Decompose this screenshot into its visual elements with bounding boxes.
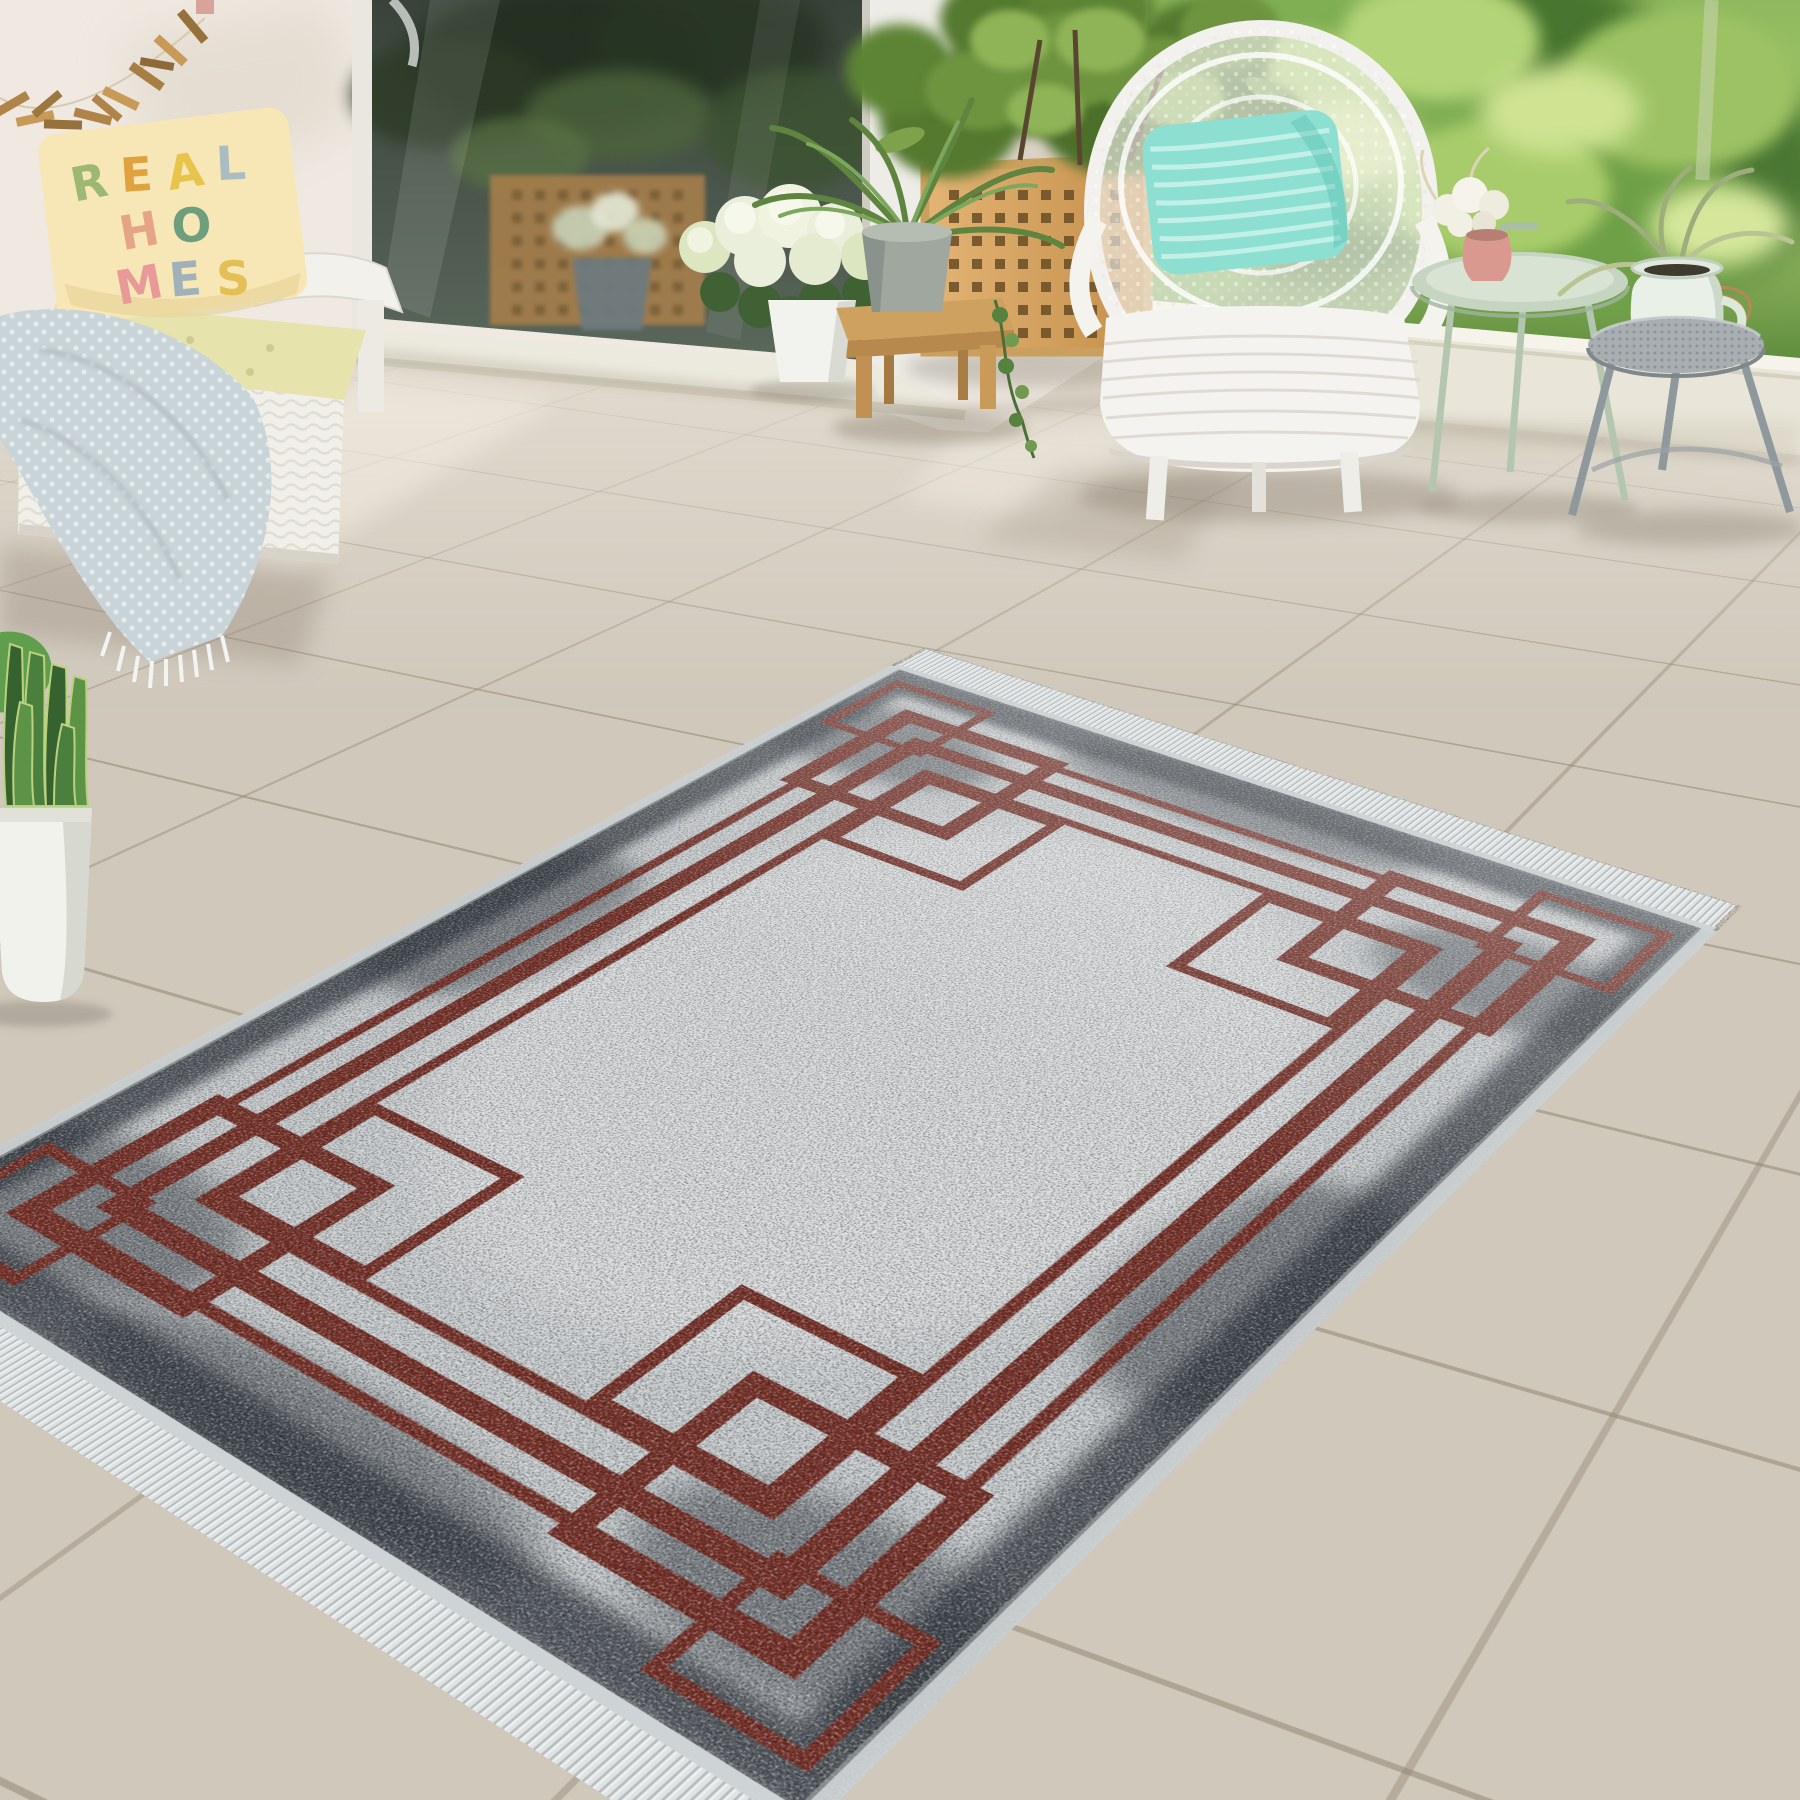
floor-light-and-shadow — [120, 352, 1800, 560]
rug-border-band — [0, 679, 1677, 1775]
wicker-bench — [0, 253, 402, 665]
pillow-letter-l: L — [214, 136, 247, 192]
driftwood-garland — [0, 0, 214, 130]
distance-haze — [0, 250, 1800, 710]
garden-foliage — [1100, 0, 1800, 315]
rug-sheen — [0, 665, 1717, 1800]
door-handle — [392, 0, 415, 66]
pillow-letter-m: M — [111, 254, 167, 317]
hydrangea-pot — [679, 184, 889, 401]
rug-art — [0, 648, 1742, 1800]
window-frame-left — [352, 0, 372, 332]
pink-vase — [1421, 148, 1511, 281]
pillow-letter-e1: E — [118, 147, 154, 204]
wood-stool — [832, 298, 1028, 444]
pillow-letter-e2: E — [167, 251, 204, 309]
rug-selvedge-left — [0, 665, 901, 1230]
rug-perspective-wrap — [365, 313, 1365, 1800]
garland-clip — [196, 0, 214, 14]
pillow-letter-s: S — [215, 251, 251, 307]
pillow-text: R E A L H O M E S — [66, 134, 265, 326]
fern-pot — [755, 100, 1062, 458]
snake-plant — [0, 621, 112, 1027]
chair-seat — [1100, 306, 1420, 472]
chair-leg-right — [1340, 451, 1362, 512]
bench-body — [18, 362, 344, 564]
rug-light-speckle — [0, 665, 1717, 1800]
enamel-jug — [1560, 168, 1792, 354]
rug-selvedge-right — [797, 927, 1717, 1800]
ivy-trail — [992, 300, 1037, 458]
table-top — [1412, 252, 1628, 312]
bench-arm — [252, 253, 402, 312]
chair-back — [1092, 28, 1430, 334]
hydrangea-leaves — [700, 272, 878, 336]
stone-tile-floor — [0, 0, 1800, 1800]
chair-leg-left — [1146, 455, 1168, 520]
metal-stool — [1560, 168, 1800, 546]
area-rug — [0, 648, 1742, 1800]
bench-cushion — [26, 300, 366, 400]
rug-pattern — [0, 683, 1666, 1761]
rug-binding-bottom — [0, 1223, 814, 1800]
calathea-leaf — [0, 621, 61, 722]
low-wall-top — [1148, 300, 1800, 372]
vase-flowers — [1421, 148, 1509, 237]
patio-scene: R E A L H O M E S — [0, 0, 1800, 1800]
jug-plant — [1560, 168, 1792, 331]
snake-plant-leaves — [4, 644, 88, 806]
stool-legs — [1572, 356, 1790, 515]
cushion-tufts — [86, 328, 274, 376]
hydrangea-blooms — [679, 184, 889, 287]
window-frame-right — [862, 0, 948, 430]
throw-blanket — [0, 309, 271, 688]
rug-dark-patches — [0, 653, 1742, 1800]
pillow-letter-h: H — [115, 201, 163, 262]
snake-plant-pot — [0, 808, 92, 1002]
stucco-wall — [0, 0, 1800, 432]
low-wall — [1148, 314, 1800, 455]
table-handle — [1500, 226, 1538, 280]
glass-pane — [372, 0, 862, 360]
fern-fronds — [755, 100, 1062, 246]
chair-leg-mid — [1252, 462, 1266, 512]
pillow-letter-o: O — [170, 198, 212, 254]
rug-dark-speckle — [0, 665, 1717, 1800]
glass-reflections — [350, 0, 875, 340]
glass-door — [340, 0, 968, 430]
rug-fringe-top — [899, 650, 1736, 927]
window-sill — [340, 328, 968, 412]
real-homes-pillow: R E A L H O M E S — [36, 105, 310, 333]
rug-center-light — [218, 759, 1489, 1499]
pillow-letter-a: A — [163, 142, 208, 202]
jug-handle — [1712, 300, 1742, 348]
throw-fringe — [102, 632, 228, 688]
rug-field — [0, 665, 1717, 1800]
pillow-letter-r: R — [66, 153, 112, 214]
mint-side-table — [1412, 148, 1638, 523]
stool-top — [1588, 317, 1764, 373]
leather-cord — [1698, 287, 1750, 331]
wicker-armchair — [980, 28, 1460, 560]
scene-overlay: R E A L H O M E S — [0, 0, 1800, 1800]
garden-view — [1100, 0, 1800, 455]
wall-shadows — [120, 0, 1150, 360]
rug-binding-top — [892, 664, 1716, 932]
planter-box — [905, 158, 1165, 388]
shrub — [845, 0, 1310, 178]
table-legs — [1432, 300, 1625, 500]
rug-selvedge-shadow-right — [793, 926, 1703, 1800]
teal-pillow — [1140, 107, 1351, 277]
rug-selvedge-shadow-left — [0, 668, 903, 1231]
rug-fringe-bottom — [0, 1231, 799, 1800]
